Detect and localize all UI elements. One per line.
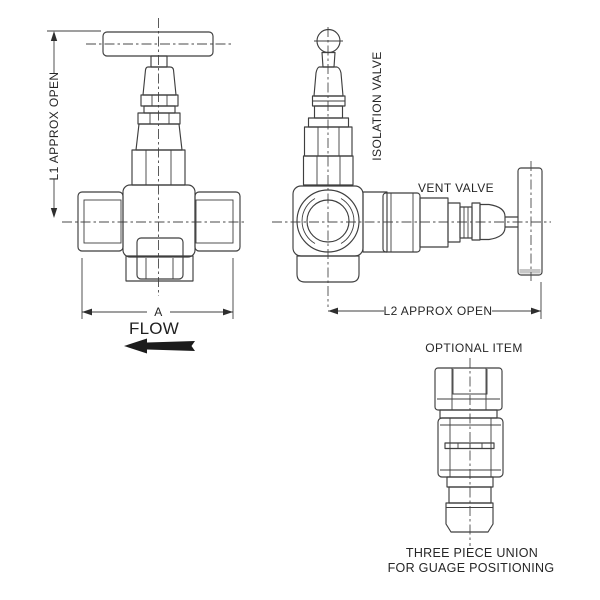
packing-hex-nut [141, 95, 178, 106]
l1-dimension: L1 APPROX OPEN [47, 31, 101, 218]
vent-block [420, 198, 448, 247]
flow-arrow-icon [124, 339, 195, 354]
optional-item-label: OPTIONAL ITEM [425, 341, 522, 355]
union-wrench-slot [445, 443, 494, 449]
hex-facet-lines [317, 156, 340, 185]
l1-dimension-label: L1 APPROX OPEN [47, 72, 61, 181]
needle-valve-front-view [62, 18, 247, 296]
vent-ring-2 [472, 203, 480, 240]
valve-body [123, 185, 195, 257]
union-neck [440, 410, 497, 418]
arrowhead-left-icon [82, 309, 92, 316]
spacer-ring [144, 106, 175, 113]
hex-facet-lines [318, 127, 339, 156]
l2-dimension-label: L2 APPROX OPEN [384, 304, 493, 318]
hex-facet-lines [391, 193, 413, 252]
bottom-port-insert [137, 238, 183, 279]
a-dimension-label: A [154, 305, 162, 319]
arrowhead-right-icon [223, 309, 233, 316]
arrowhead-down-icon [51, 208, 57, 218]
knob-neck [322, 53, 335, 68]
bonnet-dome [314, 67, 343, 96]
gland-hex-nut [138, 113, 180, 124]
flow-indicator: FLOW [124, 319, 195, 354]
arrowhead-right-icon [531, 308, 541, 315]
union-middle-hex [438, 418, 503, 477]
valve-drawing-svg: L1 APPROX OPEN A FLOW ISO [0, 0, 600, 600]
a-dimension: A [82, 258, 233, 319]
l2-dimension: L2 APPROX OPEN [328, 282, 541, 319]
valve-stem [151, 56, 167, 67]
vent-handle-disc [518, 168, 542, 275]
vent-ring-1 [448, 203, 460, 242]
optional-item-union: OPTIONAL ITEM THREE PIECE UNION FOR GUAG… [388, 341, 555, 575]
arrowhead-up-icon [51, 31, 57, 41]
bonnet-flange [309, 118, 349, 127]
disc-shading [520, 269, 541, 274]
stem-cylinder [315, 106, 343, 118]
vent-rings-mid [460, 207, 472, 238]
hex-chamfer-lines [440, 425, 501, 470]
packing-dome [143, 67, 176, 95]
ring-lines [464, 207, 468, 238]
isolation-valve-label: ISOLATION VALVE [370, 51, 384, 160]
hex-facet-lines [452, 368, 486, 410]
hex-facet-lines [152, 95, 167, 106]
left-port [78, 192, 123, 251]
technical-drawing-page: L1 APPROX OPEN A FLOW ISO [0, 0, 600, 600]
hex-facet-lines [150, 113, 169, 124]
union-caption-line1: THREE PIECE UNION [406, 546, 538, 560]
bottom-port-thread-lines [146, 258, 173, 279]
left-port-thread [84, 200, 121, 243]
slot-divider-lines [458, 443, 482, 449]
right-port-thread [196, 200, 233, 243]
vent-valve: VENT VALVE [383, 161, 542, 281]
arrowhead-left-icon [328, 308, 338, 315]
bonnet-taper [136, 124, 182, 150]
hex-facet-lines [450, 418, 491, 477]
vent-valve-label: VENT VALVE [418, 181, 494, 195]
flow-label: FLOW [129, 319, 179, 338]
union-top-hex-nut [435, 368, 502, 410]
vent-hex-body [383, 193, 420, 252]
union-caption-line2: FOR GUAGE POSITIONING [388, 561, 555, 575]
isolation-valve-side-view: ISOLATION VALVE [272, 27, 551, 307]
